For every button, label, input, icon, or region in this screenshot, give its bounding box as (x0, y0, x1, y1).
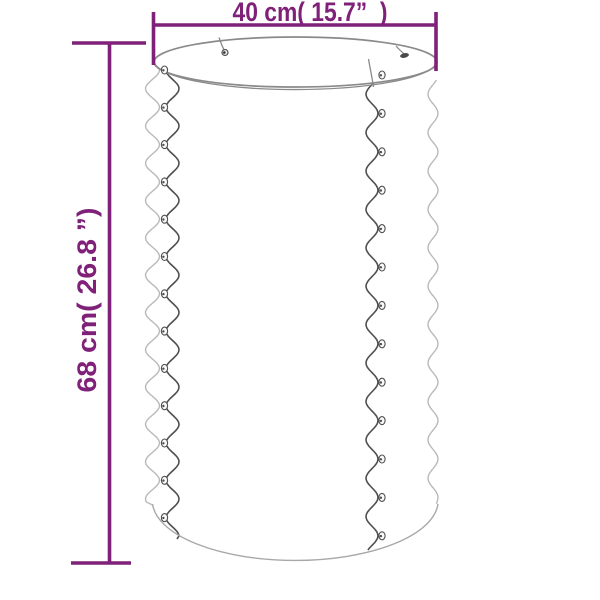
right-outer-edge (428, 80, 438, 504)
rivet-dot (162, 517, 164, 519)
rivet-dot (380, 113, 382, 115)
rivet-dot (380, 74, 382, 76)
rim-opening (154, 37, 437, 87)
planter-dimension-diagram: 40 cm( 15.7” ) 68 cm( 26.8 ”) (0, 0, 600, 600)
rivet-dot (162, 256, 164, 258)
rivet-dot (380, 189, 382, 191)
rivet-dot (162, 479, 164, 481)
left-seam-line (166, 70, 179, 539)
rivet-dot (380, 497, 382, 499)
rivet-dot (380, 343, 382, 345)
rivet-dot (162, 330, 164, 332)
rivet-dot (162, 442, 164, 444)
rivet-dot (162, 293, 164, 295)
rivet-dot (162, 181, 164, 183)
height-dimension-label: 68 cm( 26.8 ”) (72, 208, 102, 393)
left-outer-edge (146, 66, 160, 505)
rivet-dot (162, 218, 164, 220)
left-seam-rivets (161, 66, 167, 522)
right-seam-rivets (379, 71, 385, 540)
bottom-edge (153, 504, 439, 560)
rivet-dot (380, 228, 382, 230)
rivet-dot (380, 305, 382, 307)
planter-drawing (146, 37, 439, 560)
width-dimension-label: 40 cm( 15.7” ) (233, 0, 388, 27)
rivet-dot (380, 381, 382, 383)
height-dimension: 68 cm( 26.8 ”) (71, 43, 146, 563)
right-seam-line (366, 62, 378, 550)
rivet-dot (380, 458, 382, 460)
rivet-dot (380, 420, 382, 422)
rivet-dot (380, 535, 382, 537)
rivet-dot (380, 151, 382, 153)
diagram-canvas: 40 cm( 15.7” ) 68 cm( 26.8 ”) (0, 0, 600, 600)
rivet-dot (162, 368, 164, 370)
rim-rivet-left-dot (223, 51, 226, 54)
rivet-dot (162, 106, 164, 108)
rivet-dot (162, 144, 164, 146)
rivet-dot (162, 69, 164, 71)
rivet-dot (162, 405, 164, 407)
rivet-dot (380, 266, 382, 268)
